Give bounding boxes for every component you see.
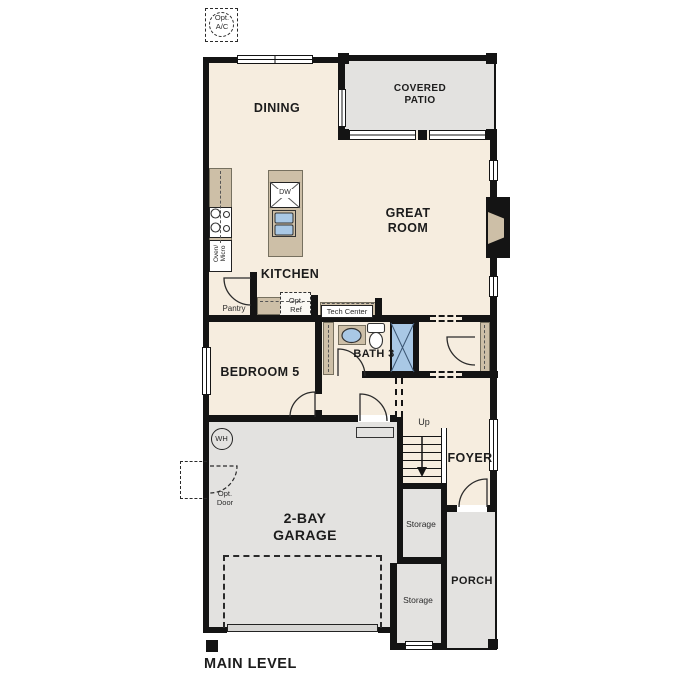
tech-center-label-box: Tech Center	[321, 305, 373, 318]
label-foyer: FOYER	[438, 451, 502, 466]
wall-bedroom-door-stub	[315, 410, 322, 422]
wall-hall-closet-top	[462, 315, 490, 322]
label-bedroom5: BEDROOM 5	[200, 365, 320, 380]
wall-bedroom-bottom	[203, 415, 315, 422]
patio-right-edge	[494, 64, 496, 130]
slider-center-post	[418, 130, 427, 140]
opening-great-room-hall	[430, 315, 462, 322]
label-main-level: MAIN LEVEL	[204, 656, 364, 674]
window-great-room-upper	[489, 160, 498, 181]
label-pantry: Pantry	[211, 304, 257, 314]
upper-cabinet-dashline	[220, 171, 221, 243]
wall-hall-bottom-left	[415, 371, 430, 378]
window-great-room-lower	[489, 276, 498, 297]
patio-post-top-right	[486, 53, 497, 64]
wall-stub-counter	[311, 295, 318, 317]
porch-post	[488, 639, 498, 649]
floor-plan-page: Oven/ Micro Opt. Ref	[0, 0, 687, 687]
wall-stub-tech-center	[375, 298, 382, 317]
stair-treads	[403, 429, 441, 483]
wall-patio-top	[340, 55, 497, 61]
wall-bedroom-right	[315, 322, 322, 394]
optional-ac-label: Opt. A/C	[211, 13, 233, 32]
wall-left-exterior	[203, 57, 209, 633]
wall-garage-top-center	[322, 415, 358, 422]
label-stairs-up: Up	[411, 417, 437, 428]
garage-apron-dashed-outline	[223, 555, 382, 628]
opening-hall-foyer	[430, 371, 462, 378]
window-patio-side	[338, 89, 346, 127]
window-dining	[237, 55, 313, 64]
closet-shelf-dashline	[484, 325, 485, 369]
patio-slider-left	[349, 130, 416, 140]
lower-counter-dashline	[260, 301, 310, 302]
tech-center-label: Tech Center	[322, 307, 372, 316]
optional-door-bumpout	[180, 461, 207, 499]
wall-porch-top-left	[447, 505, 457, 512]
label-porch: PORCH	[442, 575, 502, 588]
optional-refrigerator-label: Opt. Ref	[285, 296, 307, 315]
garage-entry-step	[356, 427, 394, 438]
optional-door-label: Opt. Door	[212, 489, 238, 508]
water-heater-label: WH	[212, 434, 231, 443]
wall-shower-right	[413, 315, 419, 378]
wall-bath-bottom	[362, 371, 415, 378]
linen-dashline	[328, 325, 329, 372]
label-storage-lower: Storage	[394, 595, 442, 606]
wall-hall-bottom-right	[462, 371, 498, 378]
wall-porch-top-right	[487, 505, 497, 512]
wall-storage-divider	[397, 557, 447, 564]
wall-kitchen-bedroom	[209, 315, 430, 322]
opening-vestibule-foyer	[395, 378, 403, 417]
label-covered-patio: COVERED PATIO	[383, 83, 457, 107]
label-storage-upper: Storage	[397, 519, 445, 530]
label-garage: 2-BAY GARAGE	[265, 510, 345, 544]
exterior-post	[206, 640, 218, 652]
label-bath3: BATH 3	[353, 348, 395, 361]
patio-slider-right	[429, 130, 486, 140]
label-dining: DINING	[237, 101, 317, 116]
label-kitchen: KITCHEN	[250, 267, 330, 282]
tech-counter-dashline	[322, 303, 374, 304]
bath-vanity	[338, 325, 366, 345]
garage-door-panel	[227, 624, 378, 632]
fireplace-chase	[486, 197, 510, 258]
wall-storage-lower-left	[390, 563, 397, 650]
label-great-room: GREAT ROOM	[372, 206, 444, 237]
oven-micro-cabinet: Oven/ Micro	[209, 240, 232, 272]
dishwasher-label: DW	[276, 189, 294, 198]
water-heater: WH	[211, 428, 233, 450]
window-storage	[405, 641, 433, 650]
closet-shelf	[480, 322, 490, 372]
